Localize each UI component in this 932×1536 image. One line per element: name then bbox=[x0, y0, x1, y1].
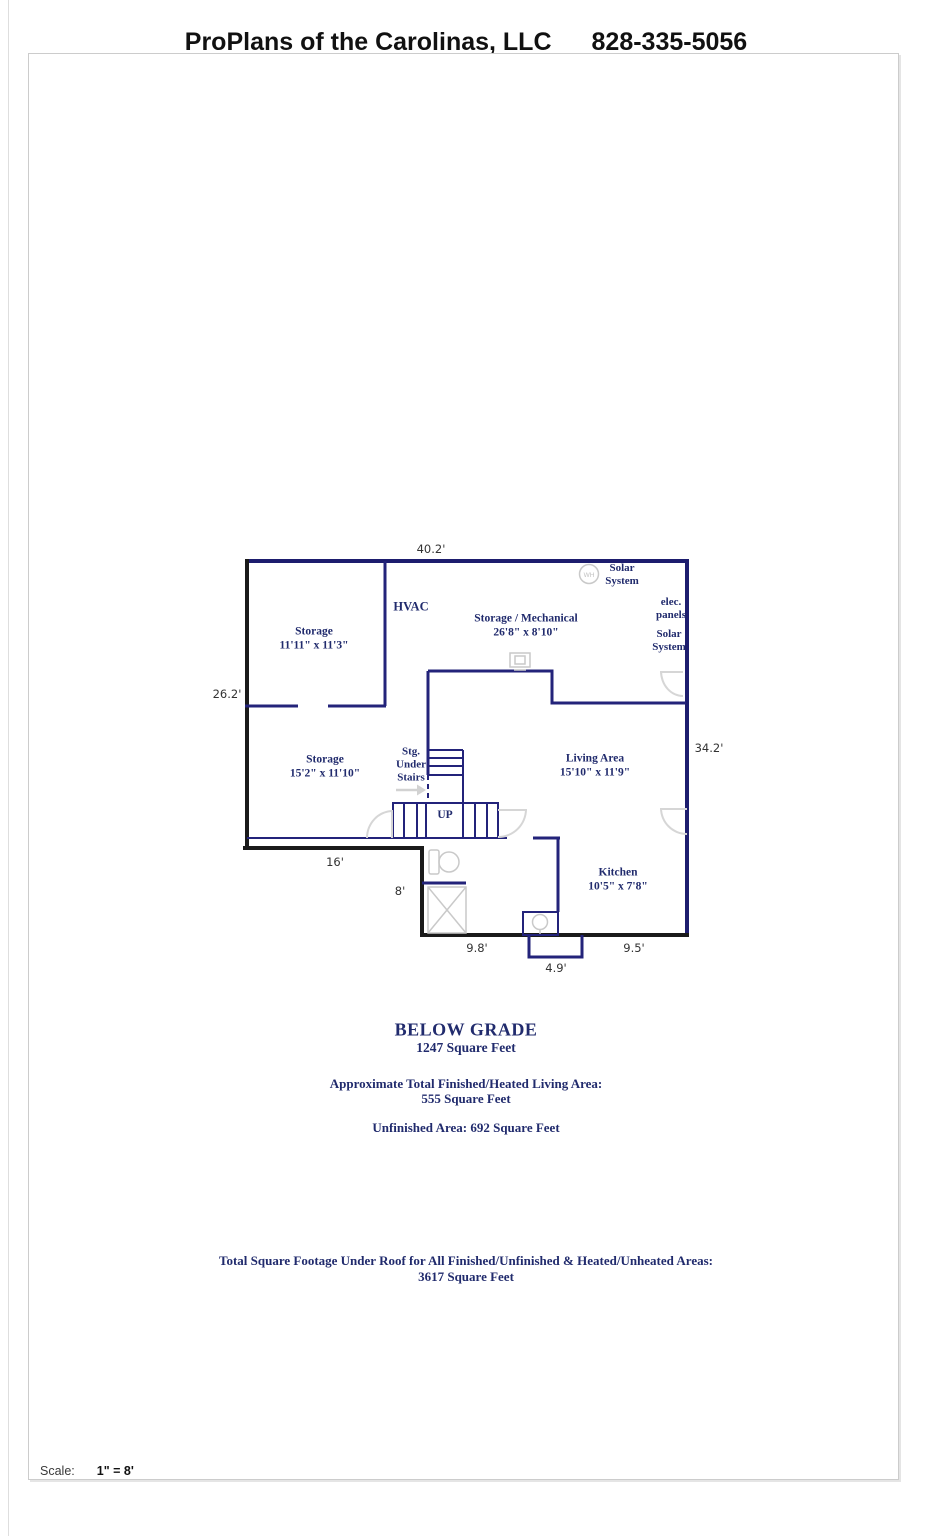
dimension-bottom-kitchen: 9.5' bbox=[623, 941, 644, 955]
label-solar-system-right: Solar System bbox=[652, 628, 686, 654]
dimension-bottom-bump: 4.9' bbox=[545, 961, 566, 975]
heated-area-label: Approximate Total Finished/Heated Living… bbox=[86, 1076, 846, 1092]
dimension-right: 34.2' bbox=[695, 741, 724, 755]
room-label-living-area: Living Area 15'10" x 11'9" bbox=[560, 752, 630, 779]
floor-title: BELOW GRADE bbox=[86, 1020, 846, 1041]
room-label-storage-upper: Storage 11'11" x 11'3" bbox=[279, 625, 348, 652]
total-area-value: 3617 Square Feet bbox=[86, 1269, 846, 1285]
page-edge-line bbox=[8, 0, 9, 1536]
scale-value: 1" = 8' bbox=[97, 1464, 134, 1478]
dimension-bottom-left: 16' bbox=[326, 855, 344, 869]
room-label-storage-mech: Storage / Mechanical 26'8" x 8'10" bbox=[474, 612, 577, 639]
total-area-label: Total Square Footage Under Roof for All … bbox=[86, 1253, 846, 1269]
dimension-bottom-bath: 9.8' bbox=[466, 941, 487, 955]
label-up: UP bbox=[437, 809, 452, 823]
room-label-kitchen: Kitchen 10'5" x 7'8" bbox=[588, 866, 647, 893]
dimension-left: 26.2' bbox=[213, 687, 242, 701]
label-solar-system-top: Solar System bbox=[605, 562, 639, 588]
label-stg-under-stairs: Stg. Under Stairs bbox=[396, 746, 426, 785]
scale-label: Scale: bbox=[40, 1464, 75, 1478]
floor-area: 1247 Square Feet bbox=[86, 1040, 846, 1056]
dimension-top: 40.2' bbox=[417, 542, 446, 556]
dimension-mid-left: 8' bbox=[395, 884, 405, 898]
scale-note: Scale:1" = 8' bbox=[40, 1464, 134, 1478]
heated-area-value: 555 Square Feet bbox=[86, 1091, 846, 1107]
room-label-hvac: HVAC bbox=[393, 600, 428, 615]
label-elec-panels: elec. panels bbox=[656, 596, 686, 622]
room-label-storage-lower: Storage 15'2" x 11'10" bbox=[290, 753, 360, 780]
unfinished-area: Unfinished Area: 692 Square Feet bbox=[86, 1120, 846, 1136]
page: ProPlans of the Carolinas, LLC 828-335-5… bbox=[0, 0, 932, 1536]
